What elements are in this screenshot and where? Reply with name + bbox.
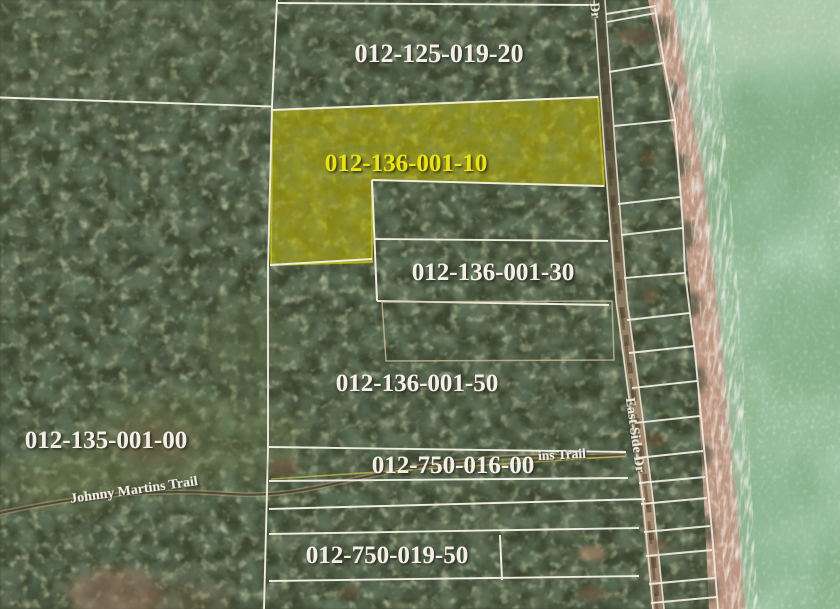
svg-text:012-136-001-10: 012-136-001-10: [325, 150, 487, 177]
svg-text:012-136-001-50: 012-136-001-50: [336, 370, 498, 397]
svg-text:012-750-016-00: 012-750-016-00: [372, 452, 534, 479]
svg-text:ins Trail: ins Trail: [538, 446, 587, 463]
svg-text:012-125-019-20: 012-125-019-20: [355, 39, 524, 68]
svg-text:012-135-001-00: 012-135-001-00: [25, 427, 187, 454]
svg-text:012-136-001-30: 012-136-001-30: [412, 259, 574, 286]
svg-text:012-750-019-50: 012-750-019-50: [306, 542, 468, 569]
